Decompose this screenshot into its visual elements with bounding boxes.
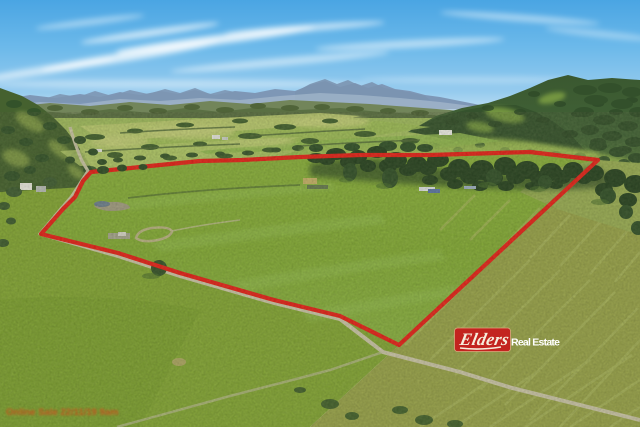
svg-text:Online Sale 22/11/19 9am: Online Sale 22/11/19 9am	[6, 407, 119, 418]
svg-text:Real Estate: Real Estate	[511, 337, 560, 349]
